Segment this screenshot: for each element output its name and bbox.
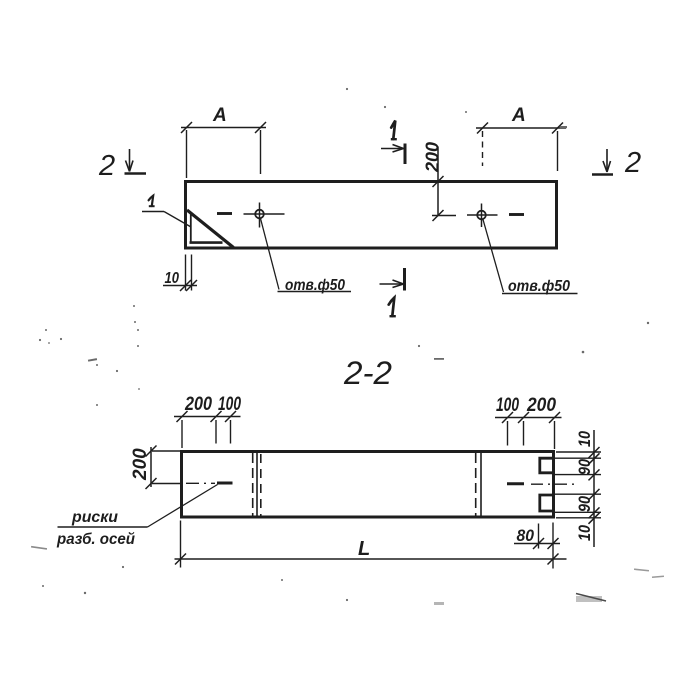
svg-text:2-2: 2-2 (343, 355, 392, 391)
svg-text:A: A (511, 105, 526, 126)
svg-text:90: 90 (575, 496, 594, 512)
svg-text:200: 200 (526, 395, 556, 416)
svg-text:разб. осей: разб. осей (56, 531, 135, 548)
svg-text:2: 2 (624, 147, 641, 179)
svg-text:200: 200 (184, 394, 212, 415)
svg-text:риски: риски (71, 509, 118, 526)
svg-text:100: 100 (496, 395, 519, 416)
svg-text:2: 2 (98, 150, 115, 182)
svg-text:200: 200 (130, 448, 151, 481)
svg-text:отв.ф50: отв.ф50 (508, 278, 570, 295)
svg-text:отв.ф50: отв.ф50 (285, 277, 345, 294)
svg-text:90: 90 (575, 459, 594, 475)
svg-text:100: 100 (218, 394, 241, 415)
svg-text:10: 10 (165, 270, 180, 287)
svg-text:200: 200 (423, 142, 443, 173)
svg-text:L: L (358, 538, 370, 560)
svg-text:80: 80 (517, 526, 535, 545)
svg-text:10: 10 (575, 431, 594, 447)
svg-text:10: 10 (575, 525, 594, 541)
svg-text:A: A (212, 105, 227, 126)
